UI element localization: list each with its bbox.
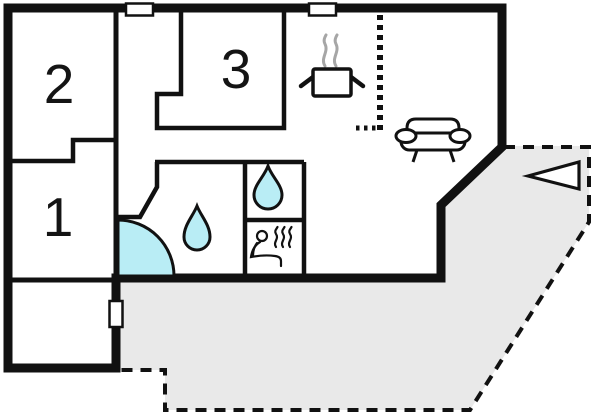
room-3-label: 3: [221, 38, 252, 100]
sofa-left-armrest: [396, 130, 416, 143]
window-bottom-left: [110, 301, 123, 327]
room-2-label: 2: [44, 53, 75, 115]
floor-plan-canvas: 2 1 3: [0, 0, 600, 414]
pot-body: [313, 69, 351, 96]
floor-plan: 2 1 3: [0, 0, 600, 414]
window-top-left: [126, 4, 153, 16]
window-top-right: [309, 4, 336, 16]
sofa-right-armrest: [450, 130, 470, 143]
room-1-label: 1: [43, 186, 74, 248]
